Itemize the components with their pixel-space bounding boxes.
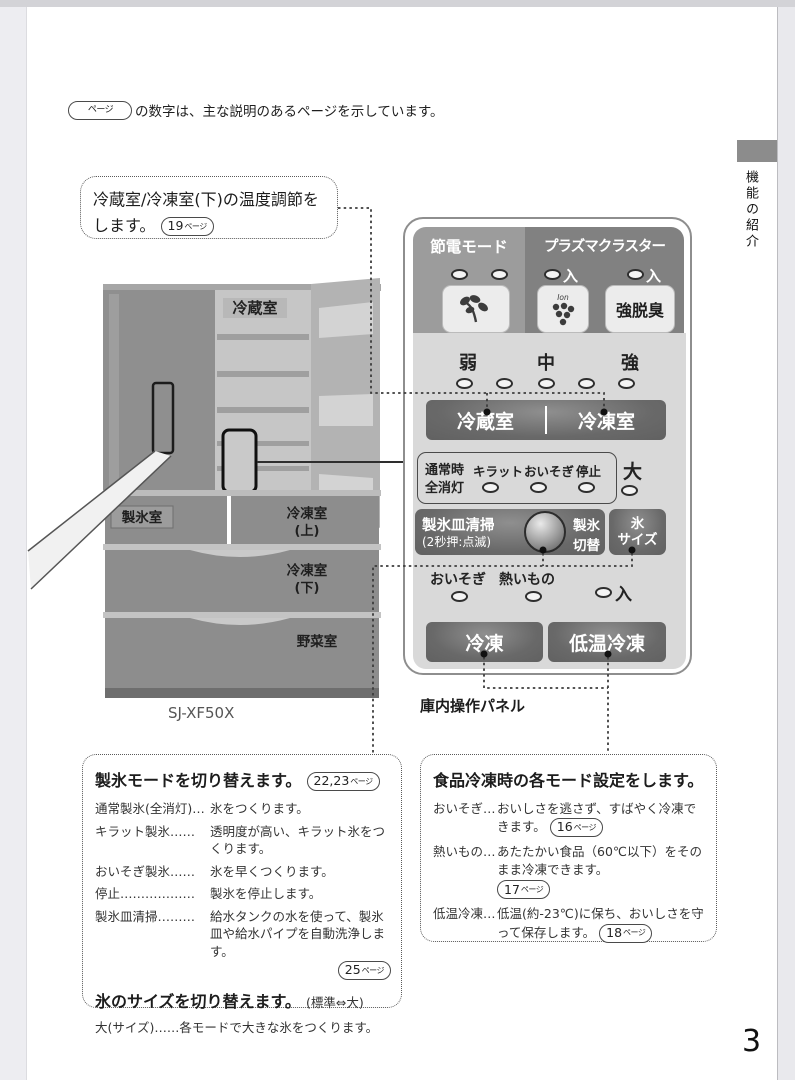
low-temp-freeze-button-label: 低温冷凍 bbox=[569, 629, 645, 656]
page-ref-25-num: 25 bbox=[345, 964, 361, 977]
ice-tray-clean-button: 製氷皿清掃 (2秒押:点滅) 製氷 切替 bbox=[415, 509, 605, 555]
led-indicator bbox=[530, 482, 547, 493]
large-size-label: 大 bbox=[623, 457, 642, 484]
freeze-box-title: 食品冷凍時の各モード設定をします。 bbox=[433, 767, 706, 791]
ice-switch-circle-button bbox=[524, 511, 566, 553]
level-weak-label: 弱 bbox=[459, 349, 477, 375]
model-number: SJ-XF50X bbox=[168, 704, 234, 722]
strong-deodorize-label: 強脱臭 bbox=[616, 297, 664, 321]
page-ref-17-num: 17 bbox=[504, 884, 520, 897]
freezer-upper-label: 冷凍室 bbox=[287, 505, 328, 522]
page-edge-left bbox=[0, 7, 27, 1080]
normal-label1: 通常時 bbox=[425, 459, 464, 478]
manual-page: ページ の数字は、主な説明のあるページを示しています。 機能の紹介 冷蔵室/冷凍… bbox=[0, 0, 795, 1080]
led-indicator bbox=[525, 591, 542, 602]
ice-size-button: 氷 サイズ bbox=[609, 509, 666, 555]
freeze-mode-info-box: 食品冷凍時の各モード設定をします。 おいそぎ… おいしさを逃さず、すばやく冷凍で… bbox=[420, 754, 717, 942]
freeze-row-desc: 低温(約-23℃)に保ち、おいしさを守って保存します。 18 ページ bbox=[497, 905, 706, 942]
page-note: ページ の数字は、主な説明のあるページを示しています。 bbox=[68, 100, 443, 120]
normal-label2: 全消灯 bbox=[425, 477, 464, 496]
on-label: 入 bbox=[615, 580, 632, 605]
led-indicator bbox=[618, 378, 635, 389]
ice-row-desc: 氷を早くつくります。 bbox=[210, 863, 391, 881]
page-ref-25-unit: ページ bbox=[362, 967, 384, 975]
ice-row-desc: 氷をつくります。 bbox=[210, 800, 391, 818]
page-ref-16-unit: ページ bbox=[574, 824, 596, 832]
ice-mode-info-box: 製氷モードを切り替えます。 22,23 ページ 通常製氷(全消灯)… 氷をつくり… bbox=[82, 754, 402, 1008]
page-ref-18-unit: ページ bbox=[623, 929, 645, 937]
ice-switch-label2: 切替 bbox=[573, 534, 600, 554]
freeze-row-desc: あたたかい食品（60℃以下）をそのまま冷凍できます。 17 ページ bbox=[497, 843, 706, 899]
ion-button: Ion bbox=[537, 285, 589, 333]
callout-line1: 冷蔵室/冷凍室(下)の温度調節を bbox=[93, 186, 325, 210]
freeze-button: 冷凍 bbox=[426, 622, 543, 662]
normal-state-box: 通常時 全消灯 キラット おいそぎ 停止 bbox=[417, 452, 617, 504]
fridge-base bbox=[105, 688, 379, 698]
operation-panel-highlight bbox=[223, 430, 256, 492]
freezer-lower-label2: (下) bbox=[295, 581, 320, 596]
ice-switch-label1: 製氷 bbox=[573, 514, 600, 534]
ice-row-desc-text: 給水タンクの水を使って、製氷皿や給水パイプを自動洗浄します。 bbox=[210, 909, 385, 959]
plasmacluster-label: プラズマクラスター bbox=[525, 235, 684, 256]
ice-size-title: 氷のサイズを切り替えます。 bbox=[95, 992, 301, 1011]
room-buttons-bar: 冷蔵室 冷凍室 bbox=[426, 400, 666, 440]
fridge-shelf bbox=[217, 407, 309, 413]
page-pill-sample: ページ bbox=[68, 101, 132, 120]
ice-row-term: おいそぎ製氷…… bbox=[95, 863, 210, 881]
page-note-text: の数字は、主な説明のあるページを示しています。 bbox=[135, 100, 443, 120]
ice-clean-label1: 製氷皿清掃 bbox=[422, 514, 495, 535]
page-ref-19: 19 ページ bbox=[161, 217, 214, 236]
ice-size-label2: サイズ bbox=[617, 532, 657, 548]
leaf-icon bbox=[459, 294, 493, 324]
plasmacluster-section: プラズマクラスター 入 入 Ion 強脱臭 bbox=[525, 227, 684, 333]
led-indicator bbox=[544, 269, 561, 280]
quick-freeze-label: おいそぎ bbox=[430, 569, 486, 589]
page-ref-16: 16 ページ bbox=[550, 818, 603, 837]
ice-row-desc: 給水タンクの水を使って、製氷皿や給水パイプを自動洗浄します。 25 ページ bbox=[210, 908, 391, 981]
page-ref-17-unit: ページ bbox=[521, 886, 543, 894]
page-ref-19-num: 19 bbox=[168, 220, 184, 233]
page-number: 3 bbox=[742, 1024, 761, 1059]
vegetable-label: 野菜室 bbox=[297, 633, 338, 650]
ion-cluster-icon: Ion bbox=[548, 292, 578, 326]
hot-items-label: 熱いもの bbox=[499, 569, 555, 589]
control-panel: 節電モード プラズマクラスター 入 入 Ion bbox=[403, 217, 692, 675]
level-strong-label: 強 bbox=[621, 349, 639, 375]
page-ref-18-num: 18 bbox=[606, 927, 622, 940]
page-edge-right bbox=[777, 7, 795, 1080]
freeze-row-desc-text: あたたかい食品（60℃以下）をそのまま冷凍できます。 bbox=[497, 844, 702, 877]
level-mid-label: 中 bbox=[537, 349, 555, 375]
fridge-label: 冷蔵室 bbox=[232, 299, 277, 317]
led-indicator bbox=[456, 378, 473, 389]
page-ref-17: 17 ページ bbox=[497, 880, 550, 899]
led-indicator bbox=[578, 482, 595, 493]
led-indicator bbox=[627, 269, 644, 280]
page-ref-19-unit: ページ bbox=[184, 223, 206, 231]
section-title-vertical: 機能の紹介 bbox=[741, 170, 760, 250]
eco-section: 節電モード bbox=[413, 227, 525, 333]
page-ref-22-23: 22,23 ページ bbox=[307, 772, 380, 791]
led-indicator bbox=[578, 378, 595, 389]
led-indicator bbox=[451, 269, 468, 280]
ice-row-term: 通常製氷(全消灯)… bbox=[95, 800, 210, 818]
freezer-lower-label: 冷凍室 bbox=[287, 562, 328, 579]
freeze-row-term: おいそぎ… bbox=[433, 800, 497, 837]
freeze-row-desc: おいしさを逃さず、すばやく冷凍できます。 16 ページ bbox=[497, 800, 706, 837]
ice-size-title-row: 氷のサイズを切り替えます。 (標準⇔大) bbox=[95, 988, 391, 1012]
eco-label: 節電モード bbox=[413, 235, 525, 257]
page-edge-top bbox=[0, 0, 795, 7]
freeze-row-term: 低温冷凍… bbox=[433, 905, 497, 942]
kiratto-label: キラット bbox=[473, 461, 523, 480]
ice-row-desc: 透明度が高い、キラット氷をつくります。 bbox=[210, 823, 391, 858]
ice-room-label: 製氷室 bbox=[121, 509, 163, 526]
ice-size-desc: ……各モードで大きな氷をつくります。 bbox=[154, 1020, 378, 1035]
oisogi-label: おいそぎ bbox=[524, 461, 574, 480]
page-pill-sample-label: ページ bbox=[88, 106, 113, 115]
ice-size-label1: 氷 bbox=[631, 516, 645, 532]
freeze-mode-list: おいそぎ… おいしさを逃さず、すばやく冷凍できます。 16 ページ 熱いもの… … bbox=[433, 800, 706, 943]
plasma-on-label: 入 bbox=[563, 265, 578, 286]
callout-line2: します。 bbox=[93, 216, 155, 235]
strong-deodorize-button: 強脱臭 bbox=[605, 285, 675, 333]
fridge-divider bbox=[103, 490, 381, 496]
ice-row-term: 停止……………… bbox=[95, 885, 210, 903]
page-ref-18: 18 ページ bbox=[599, 924, 652, 943]
ice-size-row: 大(サイズ)……各モードで大きな氷をつくります。 bbox=[95, 1017, 391, 1036]
freeze-button-label: 冷凍 bbox=[465, 629, 503, 656]
ice-box-title-row: 製氷モードを切り替えます。 22,23 ページ bbox=[95, 767, 391, 791]
page-ref-22-23-num: 22,23 bbox=[314, 775, 350, 788]
eco-mode-button bbox=[442, 285, 510, 333]
ice-row-desc: 製氷を停止します。 bbox=[210, 885, 391, 903]
led-indicator bbox=[491, 269, 508, 280]
ice-size-note: (標準⇔大) bbox=[306, 995, 364, 1010]
ice-clean-label2: (2秒押:点滅) bbox=[422, 533, 491, 550]
panel-caption: 庫内操作パネル bbox=[420, 695, 525, 716]
ice-size-term: 大(サイズ) bbox=[95, 1020, 154, 1035]
led-indicator bbox=[595, 587, 612, 598]
freezer-upper-label2: (上) bbox=[295, 524, 320, 539]
deodorize-on-label: 入 bbox=[646, 265, 661, 286]
freeze-row-term: 熱いもの… bbox=[433, 843, 497, 899]
fridge-divider bbox=[103, 544, 381, 550]
refrigerator-illustration: 冷蔵室 製氷室 冷凍室 (上) 冷凍室 (下) 野菜室 bbox=[95, 278, 387, 706]
ice-row-term: 製氷皿清掃……… bbox=[95, 908, 210, 981]
fridge-shelf bbox=[217, 334, 309, 340]
freezer-lower-drawer bbox=[105, 550, 379, 612]
fridge-temp-button: 冷蔵室 bbox=[426, 407, 545, 434]
vegetable-drawer bbox=[105, 618, 379, 688]
ice-box-title: 製氷モードを切り替えます。 bbox=[95, 771, 301, 790]
panel-body: 弱 中 強 冷蔵室 冷凍室 通常時 全消灯 キラット おいそぎ 停止 bbox=[413, 333, 686, 669]
led-indicator bbox=[496, 378, 513, 389]
fridge-divider bbox=[103, 612, 381, 618]
stop-label: 停止 bbox=[576, 461, 601, 480]
ice-switch-label: 製氷 切替 bbox=[573, 514, 600, 554]
page-ref-16-num: 16 bbox=[557, 821, 573, 834]
freezer-temp-button: 冷凍室 bbox=[547, 407, 666, 434]
section-tab-marker bbox=[737, 140, 777, 162]
ice-mode-list: 通常製氷(全消灯)… 氷をつくります。 キラット製氷…… 透明度が高い、キラット… bbox=[95, 800, 391, 980]
page-ref-25: 25 ページ bbox=[338, 961, 391, 980]
fridge-door-bin bbox=[319, 302, 373, 338]
fridge-left-door-highlight bbox=[109, 294, 119, 486]
ice-row-term: キラット製氷…… bbox=[95, 823, 210, 858]
led-indicator bbox=[451, 591, 468, 602]
callout-temperature: 冷蔵室/冷凍室(下)の温度調節を します。 19 ページ bbox=[80, 176, 338, 239]
fridge-left-door bbox=[103, 290, 215, 490]
low-temp-freeze-button: 低温冷凍 bbox=[548, 622, 666, 662]
led-indicator bbox=[538, 378, 555, 389]
ion-icon-text: Ion bbox=[557, 293, 569, 302]
led-indicator bbox=[621, 485, 638, 496]
fridge-shelf bbox=[217, 371, 309, 377]
fridge-door-bin bbox=[319, 394, 373, 426]
page-ref-22-23-unit: ページ bbox=[350, 778, 372, 786]
led-indicator bbox=[482, 482, 499, 493]
